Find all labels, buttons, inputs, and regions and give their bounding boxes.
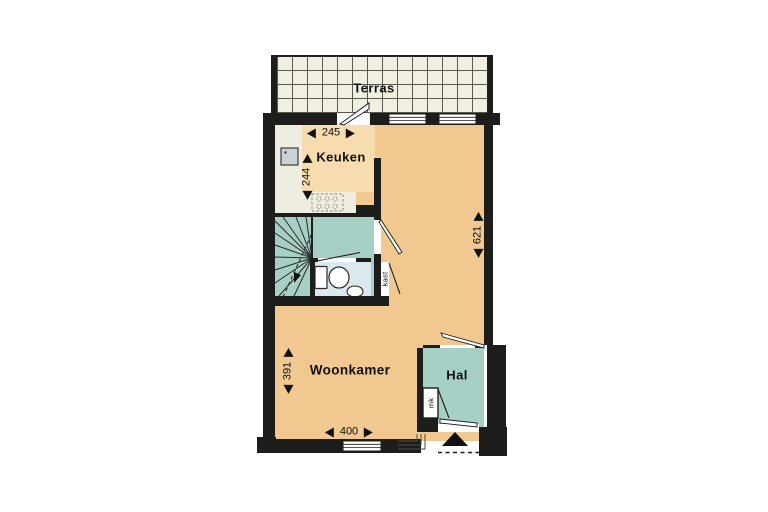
dim-overall-depth: 621 <box>473 212 484 258</box>
wall-hall-top-left <box>423 345 440 348</box>
wall-bottom <box>257 439 421 453</box>
window-bottom <box>343 441 381 451</box>
dim-arrow-left-icon <box>325 427 334 437</box>
dim-arrow-up-icon <box>473 212 483 221</box>
hall-label: Hal <box>446 368 467 383</box>
wall-hall-left <box>417 348 423 428</box>
stair-landing-divider <box>311 217 313 258</box>
dim-kitchen-depth: 244 <box>302 154 313 200</box>
hall-door-opening <box>440 345 475 348</box>
wall-right-lower <box>487 345 506 427</box>
kitchen-label: Keuken <box>316 150 365 165</box>
dim-arrow-right-icon <box>346 128 355 138</box>
floor-plan: Terras Keuken Woonkamer Hal kast mk 245 … <box>0 0 768 512</box>
dim-arrow-down-icon <box>302 191 312 200</box>
terrace-post-left <box>271 55 277 115</box>
washbasin-icon <box>347 286 363 297</box>
sink-icon <box>281 148 298 165</box>
wall-corner-pillar <box>479 427 507 456</box>
dim-arrow-down-icon <box>283 385 293 394</box>
dim-arrow-up-icon <box>302 154 312 163</box>
wall-wc-top <box>356 258 371 262</box>
living-room-label: Woonkamer <box>310 363 391 378</box>
dim-arrow-right-icon <box>364 427 373 437</box>
wall-right-upper <box>484 113 493 345</box>
window-top-1 <box>389 114 426 124</box>
terrace-label: Terras <box>353 81 394 96</box>
wall-stairblock-bottom <box>263 296 389 306</box>
terrace-post-right <box>487 55 493 115</box>
window-top-2 <box>439 114 476 124</box>
dim-arrow-down-icon <box>473 249 483 258</box>
terrace-fence-top <box>271 55 493 57</box>
wall-wc-left <box>310 258 315 297</box>
landing-door-opening <box>374 220 381 254</box>
floor-plan-linework <box>0 0 768 512</box>
wall-under-counter <box>275 213 381 217</box>
kitchen-counter-bottom <box>275 192 356 213</box>
meter-cupboard-label: mk <box>426 398 435 408</box>
dim-kitchen-width: 245 <box>307 128 355 139</box>
toilet-icon <box>315 267 349 289</box>
dim-living-depth: 391 <box>283 348 294 394</box>
wall-hall-corner-block <box>417 417 438 432</box>
wall-stairblock-right-stub <box>374 217 381 220</box>
wall-left <box>263 113 275 453</box>
dim-arrow-left-icon <box>307 128 316 138</box>
dim-arrow-up-icon <box>283 348 293 357</box>
dim-living-width: 400 <box>325 427 373 438</box>
closet-label: kast <box>381 272 390 287</box>
